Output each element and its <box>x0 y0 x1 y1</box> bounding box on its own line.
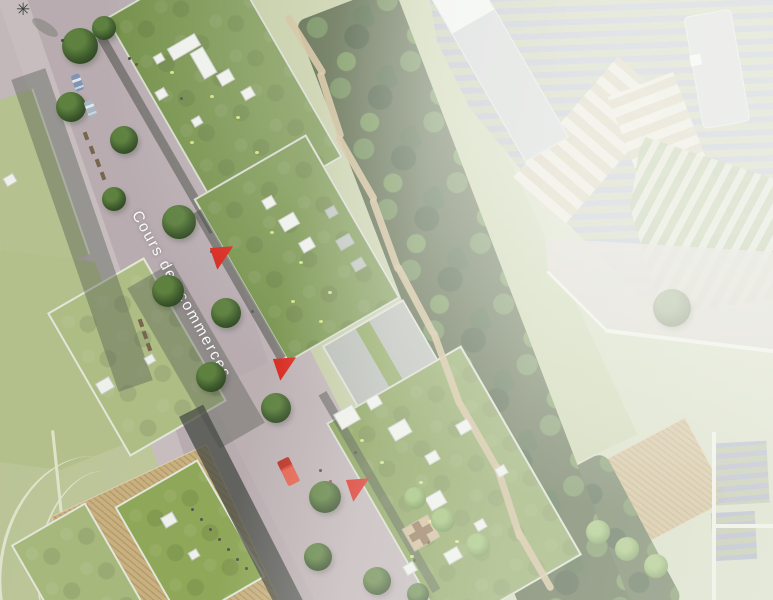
roof-plant-fleck <box>170 71 174 74</box>
roof-plant-fleck <box>299 261 303 264</box>
tree <box>363 567 391 595</box>
roof-plant-fleck <box>410 555 414 558</box>
bush <box>615 537 639 561</box>
tree <box>653 289 691 327</box>
roof-plant-fleck <box>360 439 364 442</box>
roof-plant-fleck <box>190 141 194 144</box>
roof-plant-fleck <box>455 540 459 543</box>
bush <box>404 487 426 509</box>
pedestrian <box>128 57 131 61</box>
roof-plant-fleck <box>319 320 323 323</box>
bollard <box>200 518 203 521</box>
white-path-vertical <box>712 432 716 600</box>
bush <box>644 554 668 578</box>
pedestrian <box>319 469 322 473</box>
tree <box>309 481 341 513</box>
pedestrian <box>135 63 138 67</box>
roof-plant-fleck <box>236 116 240 119</box>
bush <box>431 508 455 532</box>
bollard <box>236 558 239 561</box>
aerial-masterplan-view: ✳ Cours des commerces <box>0 0 773 600</box>
white-path-horizontal <box>712 524 773 528</box>
bollard <box>209 528 212 531</box>
roof-plant-fleck <box>380 461 384 464</box>
roof-plant-fleck <box>210 95 214 98</box>
pedestrian <box>329 480 332 484</box>
tree <box>304 543 332 571</box>
tree <box>102 187 126 211</box>
tree <box>56 92 86 122</box>
pedestrian <box>61 39 64 43</box>
tree <box>110 126 138 154</box>
tree <box>211 298 241 328</box>
pedestrian <box>180 97 183 101</box>
pedestrian <box>427 541 430 545</box>
bollard <box>218 538 221 541</box>
tree <box>196 362 226 392</box>
solar-array-se-2 <box>711 511 757 561</box>
pedestrian <box>251 310 254 314</box>
pedestrian <box>354 451 357 455</box>
roof-plant-fleck <box>419 481 423 484</box>
tree <box>162 205 196 239</box>
bollard <box>227 548 230 551</box>
rooftop-vent <box>689 54 702 67</box>
street-lamp-icon: ✳ <box>16 0 30 20</box>
tree <box>261 393 291 423</box>
solar-array-se-1 <box>714 441 769 506</box>
bush <box>466 533 490 557</box>
tree <box>152 275 184 307</box>
tree <box>407 583 429 600</box>
roof-plant-fleck <box>255 151 259 154</box>
bush <box>586 520 610 544</box>
bollard <box>245 567 248 570</box>
bollard <box>191 508 194 511</box>
roof-plant-fleck <box>291 300 295 303</box>
tree <box>92 16 116 40</box>
roof-plant-fleck <box>328 291 332 294</box>
pedestrian <box>413 559 416 563</box>
roof-plant-fleck <box>270 231 274 234</box>
